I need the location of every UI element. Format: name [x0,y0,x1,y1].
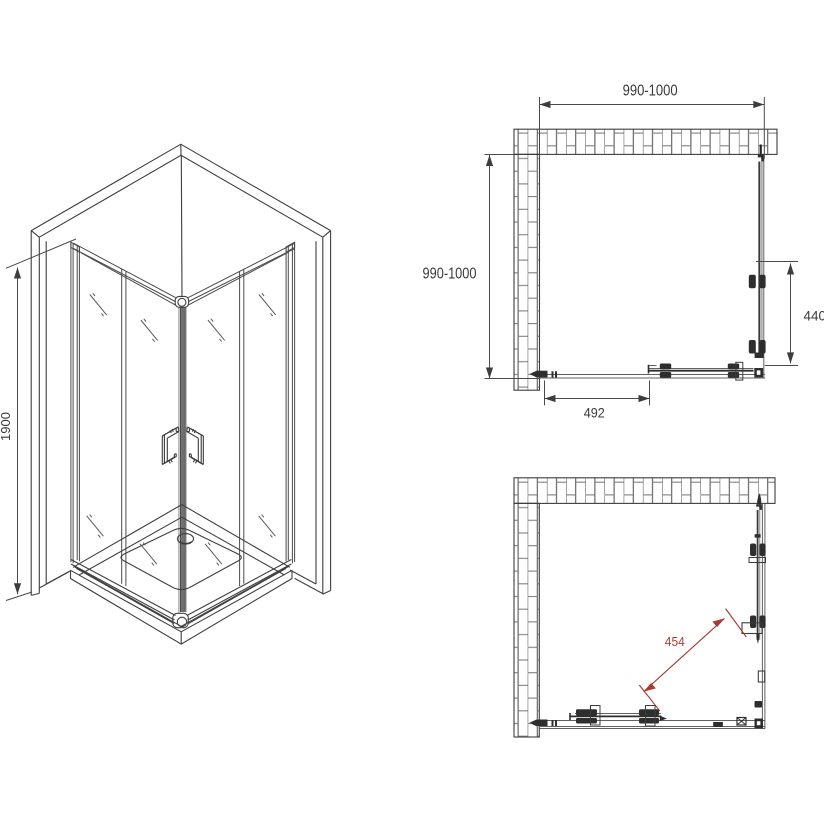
svg-text:454: 454 [665,634,685,649]
svg-text:492: 492 [584,406,605,421]
svg-text:440: 440 [804,309,824,324]
svg-text:990-1000: 990-1000 [623,82,678,99]
svg-text:1900: 1900 [0,412,13,441]
svg-text:990-1000: 990-1000 [423,265,477,282]
